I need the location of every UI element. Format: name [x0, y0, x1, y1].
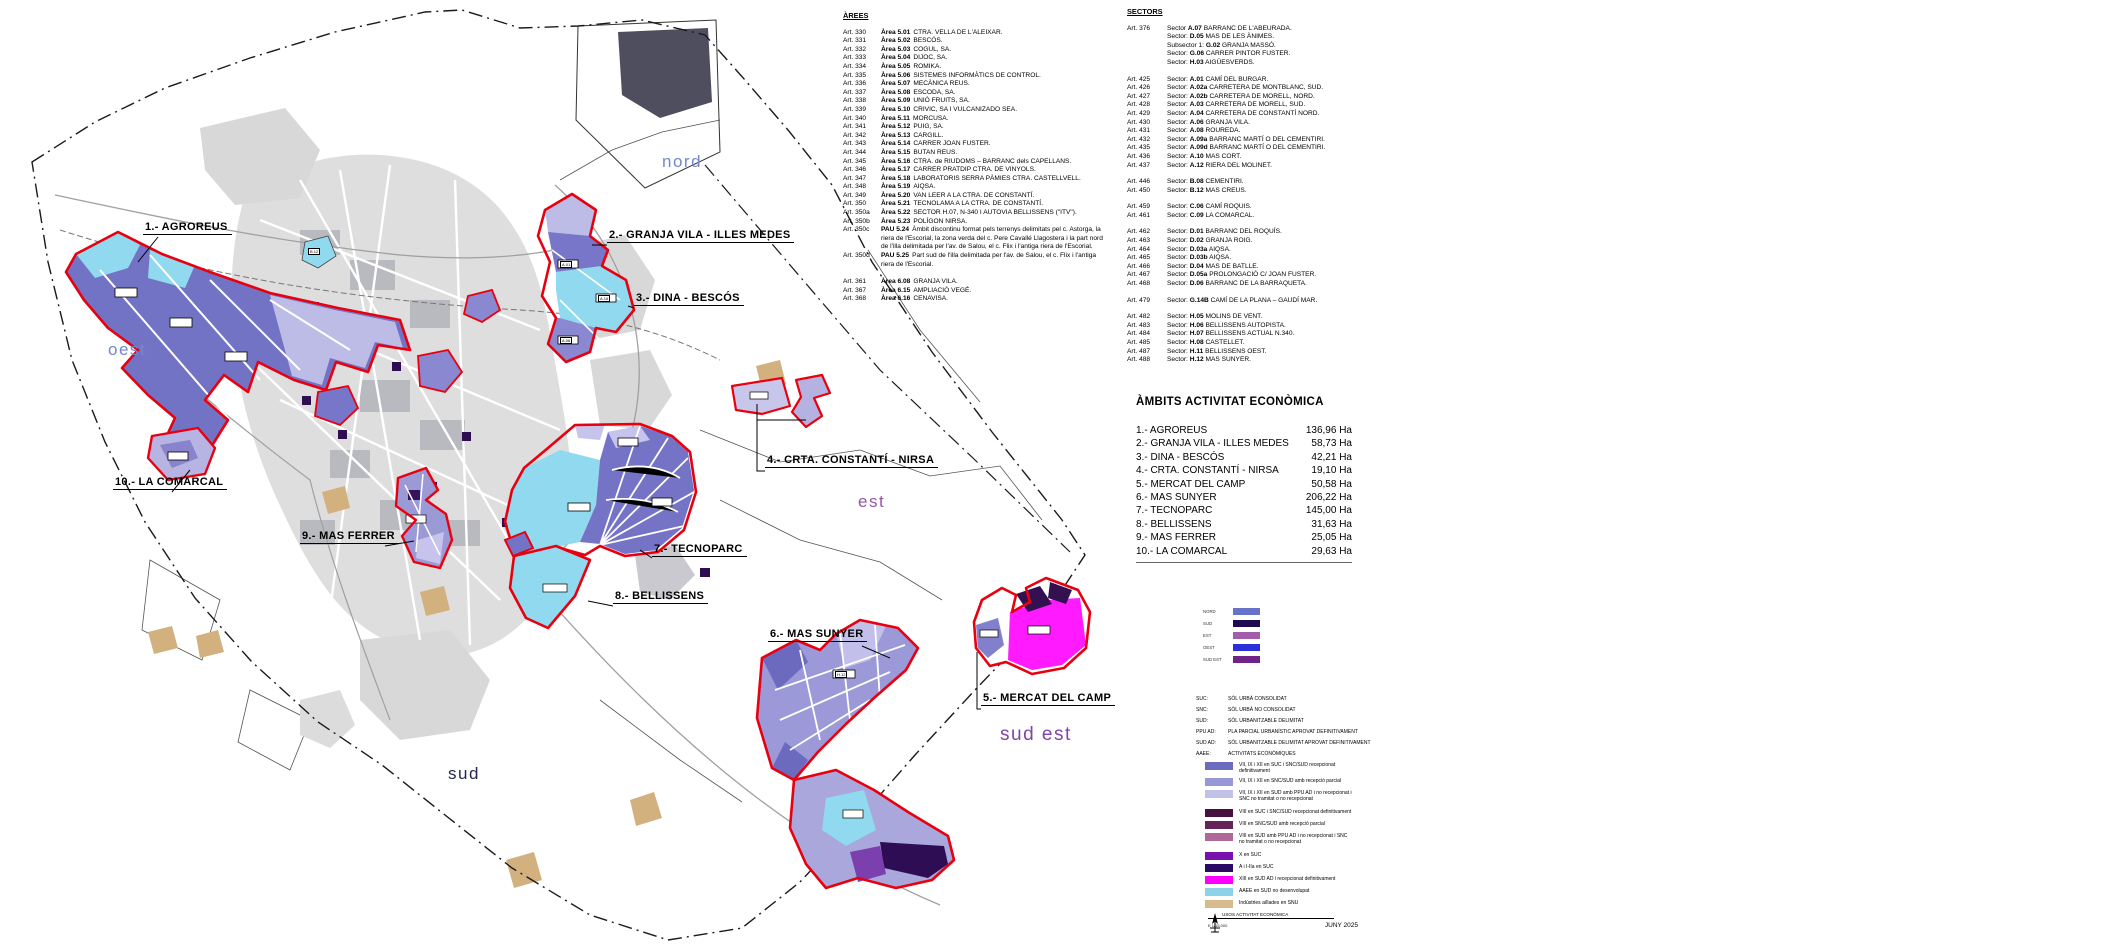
sector-name: BARRANC DEL ROQUÍS.: [1206, 228, 1282, 235]
arees-article: Art. 343: [843, 140, 881, 149]
parcel-code-b12: B.12: [308, 248, 320, 255]
north-arrow-icon: [1208, 912, 1222, 934]
arees-name: Part sud de l'illa delimitada per l'av. …: [881, 252, 1096, 268]
arees-name: SISTEMES INFORMÀTICS DE CONTROL.: [913, 72, 1041, 79]
sectors-row: Art. 436 Sector: A.10 MAS CORT.: [1127, 153, 1367, 162]
sectors-row: Art. 467 Sector: D.05a PROLONGACIÓ C/ JO…: [1127, 271, 1367, 280]
classification-text: AAEE en SUD no desenvolupat: [1239, 888, 1353, 896]
zone-legend-label: NORD: [1203, 609, 1233, 614]
abbreviation-text: ACTIVITATS ECONÒMIQUES: [1228, 749, 1378, 760]
sectors-row: Art. 459 Sector: C.06 CAMÍ ROQUIS.: [1127, 203, 1367, 212]
classification-swatch: [1205, 762, 1233, 770]
sectors-row: Art. 484 Sector: H.07 BELLISSENS ACTUAL …: [1127, 330, 1367, 339]
zone-legend-swatch: [1233, 644, 1260, 651]
sector-kind: Sector:: [1167, 178, 1188, 185]
parcel-code-h12: H.12: [835, 671, 847, 678]
arees-article: Art. 342: [843, 132, 881, 141]
sectors-row: Art. 426 Sector: A.02a CARRETERA DE MONT…: [1127, 84, 1367, 93]
sector-kind: Sector:: [1167, 356, 1188, 363]
sector-article: Art. 484: [1127, 330, 1167, 339]
arees-row: Art. 334 Àrea 5.05ROMIKA.: [843, 63, 1115, 72]
classification-row: VII, IX i XII en SNC/SUD amb recepció pa…: [1205, 778, 1357, 786]
classification-row: XIII en SUD AD i recepcionat definitivam…: [1205, 876, 1357, 884]
sector-article: Art. 436: [1127, 153, 1167, 162]
sector-code: H.08: [1190, 339, 1204, 346]
sector-code: D.05a: [1190, 271, 1208, 278]
arees-code: Àrea 5.02: [881, 37, 910, 44]
parcel-code-a16: A.16: [598, 295, 610, 302]
classification-text: VII, IX i XII en SUC i SNC/SUD recepcion…: [1239, 762, 1353, 774]
abbreviation-key: PPU AD:: [1196, 727, 1228, 738]
direction-label-oest: oest: [108, 340, 146, 360]
zone-legend-label: OEST: [1203, 645, 1233, 650]
sector-article: Art. 427: [1127, 93, 1167, 102]
sector-kind: Sector:: [1167, 127, 1188, 134]
arees-name: AMPLIACIÓ VEGÉ.: [913, 287, 971, 294]
sector-code: H.12: [1190, 356, 1204, 363]
sector-kind: Subsector 1:: [1167, 42, 1204, 49]
zone-label-bellissens: 8.- BELLISSENS: [613, 590, 708, 604]
sectors-row: Art. 462 Sector: D.01 BARRANC DEL ROQUÍS…: [1127, 228, 1367, 237]
sectors-row: Art. 463 Sector: D.02 GRANJA ROIG.: [1127, 237, 1367, 246]
sector-kind: Sector:: [1167, 339, 1188, 346]
sector-kind: Sector:: [1167, 297, 1188, 304]
zone-legend-label: SUD EST: [1203, 657, 1233, 662]
arees-code: Àrea 5.15: [881, 149, 910, 156]
sectors-row: Art. 437 Sector: A.12 RIERA DEL MOLINET.: [1127, 162, 1367, 171]
sector-kind: Sector:: [1167, 228, 1188, 235]
zone-mercat-del-camp: [974, 578, 1090, 674]
arees-row: Art. 350c PAU 5.24Àmbit discontinu forma…: [843, 226, 1115, 252]
sector-name: MOLINS DE VENT.: [1206, 313, 1263, 320]
arees-row: Art. 333 Àrea 5.04DIJOC, SA.: [843, 54, 1115, 63]
ambits-row: 5.- MERCAT DEL CAMP 50,58 Ha: [1136, 478, 1352, 491]
arees-row: Art. 350d PAU 5.25Part sud de l'illa del…: [843, 252, 1115, 269]
arees-code: Àrea 5.16: [881, 158, 910, 165]
sector-code: D.06: [1190, 280, 1204, 287]
abbreviation-key: SUD AD:: [1196, 738, 1228, 749]
sector-kind: Sector:: [1167, 187, 1188, 194]
ambit-area: 29,63 Ha: [1311, 545, 1352, 558]
arees-name: CRIVIC, SA I VULCANIZADO SEA.: [913, 106, 1017, 113]
direction-label-nord: nord: [662, 152, 702, 172]
zone-label-agroreus: 1.- AGROREUS: [143, 221, 232, 235]
sector-name: AIQSA.: [1209, 246, 1231, 253]
sectors-rows: Art. 376 Sector A.07 BARRANC DE L'ABEURA…: [1127, 25, 1367, 365]
arees-row: Art. 350 Àrea 5.21TECNOLAMA A LA CTRA. D…: [843, 200, 1115, 209]
sector-kind: Sector:: [1167, 33, 1188, 40]
arees-name: CARGILL.: [913, 132, 943, 139]
direction-label-sud: sud: [448, 764, 480, 784]
zone-granja-vila-dina-bescos: [538, 194, 634, 362]
arees-article: Art. 334: [843, 63, 881, 72]
planning-map-sheet: nord oest est sud sud est 1.- AGROREUS 2…: [0, 0, 2128, 949]
arees-article: Art. 336: [843, 80, 881, 89]
arees-article: Art. 367: [843, 287, 881, 296]
sectors-row: Art. 488 Sector: H.12 MAS SUNYER.: [1127, 356, 1367, 365]
sector-kind: Sector:: [1167, 246, 1188, 253]
abbreviation-text: SÒL URBÀ CONSOLIDAT: [1228, 694, 1378, 705]
abbreviation-key: SUC:: [1196, 694, 1228, 705]
arees-name: CTRA. de RIUDOMS – BARRANC dels CAPELLAN…: [913, 158, 1071, 165]
abbreviation-row: PPU AD: PLA PARCIAL URBANÍSTIC APROVAT D…: [1196, 727, 1378, 738]
sector-article: Art. 429: [1127, 110, 1167, 119]
arees-code: Àrea 5.04: [881, 54, 910, 61]
classification-row: VIII en SUC i SNC/SUD recepcionat defini…: [1205, 809, 1357, 817]
zone-la-comarcal: [148, 428, 215, 480]
zone-label-la-comarcal: 10.- LA COMARCAL: [113, 476, 227, 490]
arees-article: Art. 333: [843, 54, 881, 63]
arees-article: Art. 340: [843, 115, 881, 124]
sectors-row: Art. 487 Sector: H.11 BELLISSENS OEST.: [1127, 348, 1367, 357]
sector-code: D.01: [1190, 228, 1204, 235]
ambit-area: 31,63 Ha: [1311, 518, 1352, 531]
sector-article: Art. 446: [1127, 178, 1167, 187]
sector-article: Art. 459: [1127, 203, 1167, 212]
ambits-row: 4.- CRTA. CONSTANTÍ - NIRSA 19,10 Ha: [1136, 464, 1352, 477]
arees-row: Art. 330 Àrea 5.01CTRA. VELLA DE L'ALEIX…: [843, 29, 1115, 38]
classification-swatch: [1205, 876, 1233, 884]
sector-code: H.07: [1190, 330, 1204, 337]
sectors-row: Art. 430 Sector: A.06 GRANJA VILA.: [1127, 119, 1367, 128]
parcel-code-a06: A.06: [560, 337, 572, 344]
ambit-name: 2.- GRANJA VILA - ILLES MEDES: [1136, 437, 1289, 450]
ambits-row: 10.- LA COMARCAL 29,63 Ha: [1136, 545, 1352, 558]
abbreviation-rows: SUC: SÒL URBÀ CONSOLIDAT SNC: SÒL URBÀ N…: [1196, 694, 1378, 760]
arees-article: Art. 330: [843, 29, 881, 38]
sector-kind: Sector:: [1167, 322, 1188, 329]
sector-article: Art. 488: [1127, 356, 1167, 365]
sector-kind: Sector:: [1167, 330, 1188, 337]
classification-swatch: [1205, 778, 1233, 786]
sector-kind: Sector:: [1167, 119, 1188, 126]
sector-article: [1127, 33, 1167, 42]
classification-row: VIII en SUD amb PPU AD i no recepcionat …: [1205, 833, 1357, 845]
sector-code: C.06: [1190, 203, 1204, 210]
ambit-name: 6.- MAS SUNYER: [1136, 491, 1217, 504]
arees-name: COGUL, SA.: [913, 46, 951, 53]
arees-row: Art. 361 Àrea 6.08GRANJA VILA.: [843, 278, 1115, 287]
arees-article: Art. 350c: [843, 226, 881, 252]
arees-name: LABORATORIS SERRA PÀMIES CTRA. CASTELLVE…: [913, 175, 1080, 182]
abbreviation-row: SUD: SÒL URBANITZABLE DELIMITAT: [1196, 716, 1378, 727]
classification-text: VIII en SNC/SUD amb recepció parcial: [1239, 821, 1353, 829]
zone-label-granja-vila: 2.- GRANJA VILA - ILLES MEDES: [607, 229, 794, 243]
sector-article: [1127, 59, 1167, 68]
zone-label-tecnoparc: 7.- TECNOPARC: [652, 543, 747, 557]
sector-code: H.11: [1190, 348, 1204, 355]
ambits-row: 8.- BELLISSENS 31,63 Ha: [1136, 518, 1352, 531]
ambit-name: 1.- AGROREUS: [1136, 424, 1207, 437]
zone-nirsa: [732, 375, 830, 427]
zones-legend: NORD SUD EST OEST: [1203, 608, 1260, 668]
arees-code: Àrea 6.15: [881, 287, 910, 294]
sector-name: BELLISSENS ACTUAL N.340.: [1206, 330, 1295, 337]
sector-article: Art. 430: [1127, 119, 1167, 128]
sector-code: H.03: [1190, 59, 1204, 66]
arees-name: BESCÓS.: [913, 37, 942, 44]
classification-swatch: [1205, 888, 1233, 896]
sector-name: CASTELLET.: [1206, 339, 1245, 346]
arees-row: Art. 350a Àrea 5.22SECTOR H.07, N-340 I …: [843, 209, 1115, 218]
parcel-code-a01: A.01: [560, 261, 572, 268]
arees-name: CARRER PRATDIP CTRA. DE VINYOLS.: [913, 166, 1036, 173]
arees-article: Art. 361: [843, 278, 881, 287]
arees-code: Àrea 5.18: [881, 175, 910, 182]
sectors-row: Art. 483 Sector: H.06 BELLISSENS AUTOPIS…: [1127, 322, 1367, 331]
ambit-area: 19,10 Ha: [1311, 464, 1352, 477]
classification-swatch: [1205, 809, 1233, 817]
arees-name: DIJOC, SA.: [913, 54, 947, 61]
sector-article: Art. 463: [1127, 237, 1167, 246]
arees-name: POLÍGON NIRSA.: [913, 218, 967, 225]
sector-name: CARRETERA DE MONTBLANC, SUD.: [1209, 84, 1323, 91]
sectors-row: Art. 425 Sector: A.01 CAMÍ DEL BURGAR.: [1127, 76, 1367, 85]
arees-name: ROMIKA.: [913, 63, 941, 70]
sector-kind: Sector:: [1167, 84, 1188, 91]
sector-name: ROUREDA.: [1206, 127, 1241, 134]
sector-kind: Sector:: [1167, 263, 1188, 270]
arees-name: SECTOR H.07, N-340 I AUTOVIA BELLISSENS …: [913, 209, 1076, 216]
sector-name: CEMENTIRI.: [1206, 178, 1244, 185]
classification-swatch: [1205, 790, 1233, 798]
zone-legend-swatch: [1233, 656, 1260, 663]
sector-name: AIGÜESVERDS.: [1205, 59, 1254, 66]
arees-code: Àrea 5.14: [881, 140, 910, 147]
sector-name: GRANJA MASSÓ.: [1222, 42, 1276, 49]
sector-name: CAMÍ ROQUIS.: [1206, 203, 1252, 210]
sectors-row: Art. 485 Sector: H.08 CASTELLET.: [1127, 339, 1367, 348]
arees-code: Àrea 5.11: [881, 115, 910, 122]
sector-name: CARRER PINTOR FUSTER.: [1206, 50, 1291, 57]
sector-article: Art. 479: [1127, 297, 1167, 306]
abbreviation-text: SÒL URBÀ NO CONSOLIDAT: [1228, 705, 1378, 716]
ambit-area: 206,22 Ha: [1306, 491, 1352, 504]
direction-label-est: est: [858, 492, 885, 512]
ambit-name: 8.- BELLISSENS: [1136, 518, 1212, 531]
sheet-date: JUNY 2025: [1228, 922, 1358, 929]
arees-article: Art. 350b: [843, 218, 881, 227]
arees-name: PUIG, SA.: [913, 123, 943, 130]
sector-code: H.06: [1190, 322, 1204, 329]
arees-name: BUTAN REUS.: [913, 149, 957, 156]
sectors-row: Sector: G.06 CARRER PINTOR FUSTER.: [1127, 50, 1367, 59]
classification-text: VII, IX i XII en SUD amb PPU AD i no rec…: [1239, 790, 1353, 802]
classification-swatch: [1205, 864, 1233, 872]
arees-row: Art. 344 Àrea 5.15BUTAN REUS.: [843, 149, 1115, 158]
title-block: USOS ACTIVITAT ECONÒMICA E 1/15.000 JUNY…: [1208, 912, 1358, 929]
classification-legend: VII, IX i XII en SUC i SNC/SUD recepcion…: [1205, 762, 1357, 912]
abbreviation-key: SUD:: [1196, 716, 1228, 727]
ambit-name: 9.- MAS FERRER: [1136, 531, 1216, 544]
classification-row: VII, IX i XII en SUD amb PPU AD i no rec…: [1205, 790, 1357, 802]
arees-row: Art. 348 Àrea 5.19AIQSA.: [843, 183, 1115, 192]
arees-row: Art. 335 Àrea 5.06SISTEMES INFORMÀTICS D…: [843, 72, 1115, 81]
sector-name: LA COMARCAL.: [1206, 212, 1255, 219]
classification-swatch: [1205, 852, 1233, 860]
sector-name: CARRETERA DE CONSTANTÍ NORD.: [1206, 110, 1320, 117]
arees-name: CTRA. VELLA DE L'ALEIXAR.: [913, 29, 1002, 36]
arees-name: Àmbit discontinu format pels terrenys de…: [881, 226, 1103, 250]
sector-article: Art. 483: [1127, 322, 1167, 331]
arees-code: Àrea 5.13: [881, 132, 910, 139]
sector-article: Art. 432: [1127, 136, 1167, 145]
sector-name: MAS CORT.: [1206, 153, 1242, 160]
ambit-area: 25,05 Ha: [1311, 531, 1352, 544]
sectors-row: Art. 446 Sector: B.08 CEMENTIRI.: [1127, 178, 1367, 187]
sector-code: A.08: [1190, 127, 1204, 134]
sectors-row: Art. 427 Sector: A.02b CARRETERA DE MORE…: [1127, 93, 1367, 102]
arees-code: Àrea 5.01: [881, 29, 910, 36]
sectors-row: Art. 450 Sector: B.12 MAS CREUS.: [1127, 187, 1367, 196]
arees-name: CARRER JOAN FUSTER.: [913, 140, 990, 147]
zone-legend-swatch: [1233, 632, 1260, 639]
sector-name: BARRANC MARTÍ O DEL CEMENTIRI.: [1210, 144, 1326, 151]
arees-row: Art. 347 Àrea 5.18LABORATORIS SERRA PÀMI…: [843, 175, 1115, 184]
arees-name: MORCUSA.: [913, 115, 949, 122]
ambits-row: 3.- DINA - BESCÓS 42,21 Ha: [1136, 451, 1352, 464]
sector-kind: Sector:: [1167, 280, 1188, 287]
abbreviation-key: AAEE:: [1196, 749, 1228, 760]
zone-mas-sunyer: [757, 620, 954, 888]
arees-name: CENAVISA.: [913, 295, 948, 302]
sector-kind: Sector:: [1167, 144, 1188, 151]
classification-text: VIII en SUD amb PPU AD i no recepcionat …: [1239, 833, 1353, 845]
classification-text: Indústries aïllades en SNU: [1239, 900, 1353, 908]
sector-code: A.01: [1190, 76, 1204, 83]
zones-legend-row: SUD EST: [1203, 656, 1260, 663]
abbreviation-text: SÒL URBANITZABLE DELIMITAT APROVAT DEFIN…: [1228, 738, 1378, 749]
arees-name: MECÀNICA REUS.: [913, 80, 969, 87]
sector-kind: Sector:: [1167, 101, 1188, 108]
sector-name: GRANJA VILA.: [1206, 119, 1250, 126]
classification-text: VII, IX i XII en SNC/SUD amb recepció pa…: [1239, 778, 1353, 786]
arees-article: Art. 350a: [843, 209, 881, 218]
arees-code: Àrea 5.23: [881, 218, 910, 225]
sector-name: AIQSA.: [1209, 254, 1231, 261]
arees-name: ESCODA, SA.: [913, 89, 955, 96]
arees-code: Àrea 5.21: [881, 200, 910, 207]
sector-kind: Sector:: [1167, 348, 1188, 355]
ambit-area: 50,58 Ha: [1311, 478, 1352, 491]
sector-code: B.08: [1190, 178, 1204, 185]
ambits-row: 7.- TECNOPARC 145,00 Ha: [1136, 504, 1352, 517]
ambits-row: 9.- MAS FERRER 25,05 Ha: [1136, 531, 1352, 544]
sector-article: Art. 450: [1127, 187, 1167, 196]
arees-name: AIQSA.: [913, 183, 935, 190]
classification-swatch: [1205, 821, 1233, 829]
arees-row: Art. 345 Àrea 5.16CTRA. de RIUDOMS – BAR…: [843, 158, 1115, 167]
sectors-row: Art. 482 Sector: H.05 MOLINS DE VENT.: [1127, 313, 1367, 322]
sectors-row: Art. 465 Sector: D.03b AIQSA.: [1127, 254, 1367, 263]
arees-code: Àrea 5.19: [881, 183, 910, 190]
arees-name: VAN LEER A LA CTRA. DE CONSTANTÍ.: [913, 192, 1034, 199]
abbreviation-row: SUC: SÒL URBÀ CONSOLIDAT: [1196, 694, 1378, 705]
sector-code: A.02b: [1190, 93, 1208, 100]
sector-name: BELLISSENS AUTOPISTA.: [1206, 322, 1286, 329]
sector-name: BARRANC DE L'ABEURADA.: [1204, 25, 1292, 32]
arees-row: Art. 368 Àrea 6.16CENAVISA.: [843, 295, 1115, 304]
arees-code: Àrea 5.03: [881, 46, 910, 53]
arees-code: Àrea 5.08: [881, 89, 910, 96]
arees-article: Art. 346: [843, 166, 881, 175]
sector-kind: Sector: [1167, 25, 1186, 32]
arees-article: Art. 337: [843, 89, 881, 98]
sector-kind: Sector:: [1167, 162, 1188, 169]
classification-row: X en SUC: [1205, 852, 1357, 860]
sector-article: Art. 466: [1127, 263, 1167, 272]
zones-legend-row: SUD: [1203, 620, 1260, 627]
arees-row: Art. 336 Àrea 5.07MECÀNICA REUS.: [843, 80, 1115, 89]
classification-text: A i I-IIa en SUC: [1239, 864, 1353, 872]
sector-kind: Sector:: [1167, 110, 1188, 117]
sector-code: G.06: [1190, 50, 1204, 57]
classification-row: AAEE en SUD no desenvolupat: [1205, 888, 1357, 896]
sector-name: MAS CREUS.: [1206, 187, 1247, 194]
arees-article: Art. 349: [843, 192, 881, 201]
arees-code: Àrea 6.16: [881, 295, 910, 302]
arees-code: Àrea 5.09: [881, 97, 910, 104]
sector-code: A.03: [1190, 101, 1204, 108]
sector-code: D.05: [1190, 33, 1204, 40]
sector-name: BARRANC DE LA BARRAQUETA.: [1206, 280, 1307, 287]
sectors-row: Art. 435 Sector: A.09d BARRANC MARTÍ O D…: [1127, 144, 1367, 153]
sector-kind: Sector:: [1167, 237, 1188, 244]
zones-legend-rows: NORD SUD EST OEST: [1203, 608, 1260, 663]
classification-row: VIII en SNC/SUD amb recepció parcial: [1205, 821, 1357, 829]
ambits-title: ÀMBITS ACTIVITAT ECONÒMICA: [1136, 396, 1352, 408]
ambit-name: 4.- CRTA. CONSTANTÍ - NIRSA: [1136, 464, 1279, 477]
arees-code: PAU 5.25: [881, 252, 909, 259]
sectors-row: Art. 479 Sector: G.14B CAMÍ DE LA PLANA …: [1127, 297, 1367, 306]
zone-legend-swatch: [1233, 608, 1260, 615]
arees-code: Àrea 6.08: [881, 278, 910, 285]
sector-code: A.06: [1190, 119, 1204, 126]
sector-article: Art. 428: [1127, 101, 1167, 110]
sector-kind: Sector:: [1167, 313, 1188, 320]
arees-code: Àrea 5.17: [881, 166, 910, 173]
sector-code: B.12: [1190, 187, 1204, 194]
sector-name: MAS DE LES ÀNIMES.: [1206, 33, 1275, 40]
arees-name: TECNOLAMA A LA CTRA. DE CONSTANTÍ.: [913, 200, 1043, 207]
zones-legend-row: EST: [1203, 632, 1260, 639]
classification-row: VII, IX i XII en SUC i SNC/SUD recepcion…: [1205, 762, 1357, 774]
arees-article: Art. 345: [843, 158, 881, 167]
arees-code: Àrea 5.07: [881, 80, 910, 87]
sector-article: Art. 425: [1127, 76, 1167, 85]
arees-article: Art. 341: [843, 123, 881, 132]
arees-row: Art. 339 Àrea 5.10CRIVIC, SA I VULCANIZA…: [843, 106, 1115, 115]
sector-name: CAMÍ DE LA PLANA – GAUDÍ MAR.: [1211, 297, 1318, 304]
arees-code: PAU 5.24: [881, 226, 909, 233]
zone-legend-swatch: [1233, 620, 1260, 627]
sector-name: CARRETERA DE MORELL, NORD.: [1210, 93, 1315, 100]
ambits-rows: 1.- AGROREUS 136,96 Ha 2.- GRANJA VILA -…: [1136, 424, 1352, 563]
classification-swatch: [1205, 833, 1233, 841]
arees-code: Àrea 5.12: [881, 123, 910, 130]
sector-kind: Sector:: [1167, 254, 1188, 261]
sector-article: Art. 431: [1127, 127, 1167, 136]
ambit-name: 3.- DINA - BESCÓS: [1136, 451, 1224, 464]
arees-code: Àrea 5.20: [881, 192, 910, 199]
arees-article: Art. 344: [843, 149, 881, 158]
sectors-row: Art. 428 Sector: A.03 CARRETERA DE MOREL…: [1127, 101, 1367, 110]
arees-row: Art. 331 Àrea 5.02BESCÓS.: [843, 37, 1115, 46]
arees-row: Art. 346 Àrea 5.17CARRER PRATDIP CTRA. D…: [843, 166, 1115, 175]
sector-name: MAS SUNYER.: [1206, 356, 1251, 363]
sector-code: D.03b: [1190, 254, 1208, 261]
sector-code: A.02a: [1190, 84, 1208, 91]
